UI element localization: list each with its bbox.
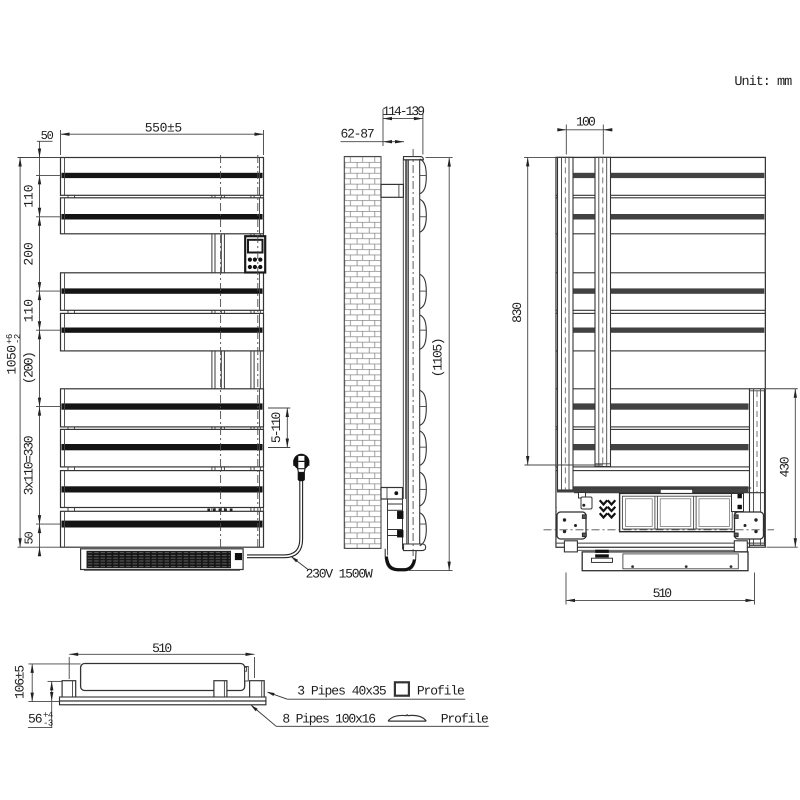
svg-text:430: 430 bbox=[778, 457, 793, 477]
svg-text:50: 50 bbox=[23, 532, 37, 545]
svg-text:510: 510 bbox=[653, 586, 672, 601]
svg-text:Profile: Profile bbox=[441, 712, 488, 727]
svg-text:110: 110 bbox=[22, 299, 37, 322]
svg-text:56: 56 bbox=[28, 712, 42, 727]
svg-text:1050: 1050 bbox=[4, 345, 19, 374]
svg-text:62-87: 62-87 bbox=[340, 127, 373, 142]
svg-text:-2: -2 bbox=[13, 334, 23, 344]
svg-text:5-110: 5-110 bbox=[269, 413, 284, 444]
svg-text:114-139: 114-139 bbox=[382, 104, 424, 119]
svg-text:(200): (200) bbox=[22, 353, 37, 385]
svg-text:3x110=330: 3x110=330 bbox=[22, 436, 37, 495]
svg-text:Profile: Profile bbox=[417, 684, 464, 699]
svg-text:200: 200 bbox=[22, 242, 37, 265]
svg-text:550±5: 550±5 bbox=[145, 121, 182, 136]
svg-text:50: 50 bbox=[41, 129, 54, 143]
svg-text:Unit: mm: Unit: mm bbox=[734, 75, 792, 90]
svg-text:106±5: 106±5 bbox=[13, 666, 28, 699]
svg-text:8 Pipes 100x16: 8 Pipes 100x16 bbox=[282, 712, 375, 727]
svg-text:3 Pipes 40x35: 3 Pipes 40x35 bbox=[297, 684, 386, 699]
svg-text:100: 100 bbox=[576, 115, 595, 130]
svg-text:110: 110 bbox=[22, 184, 37, 207]
svg-text:(1105): (1105) bbox=[430, 339, 445, 377]
svg-text:-3: -3 bbox=[43, 719, 53, 729]
svg-text:510: 510 bbox=[152, 641, 171, 656]
svg-text:230V 1500W: 230V 1500W bbox=[306, 567, 373, 582]
svg-text:830: 830 bbox=[510, 303, 525, 323]
